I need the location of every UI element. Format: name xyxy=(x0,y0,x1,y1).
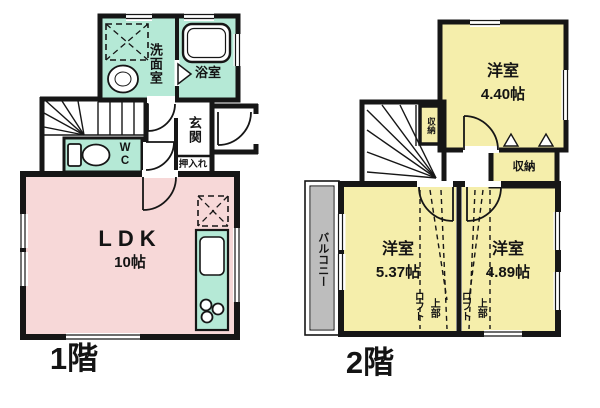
bedroom3-name-label: 洋室 xyxy=(464,240,552,260)
bedroom1-name-label: 洋室 xyxy=(461,62,545,82)
refrigerator-space xyxy=(198,196,228,226)
floor2-label: 2階 xyxy=(326,342,414,384)
washbasin xyxy=(108,66,138,93)
bedroom2-size-label: 5.37帖 xyxy=(344,264,452,282)
floorplan-canvas: 洗面室 浴室 玄関 WC 押入れ LDK 10帖 1階 洋室 4.40帖 収納 … xyxy=(0,0,600,408)
washing-machine xyxy=(106,24,148,60)
wc-label: WC xyxy=(117,139,133,171)
entrance-label: 玄関 xyxy=(185,106,203,154)
bedroom2-loft-label: ロフト xyxy=(410,280,424,332)
ldk-name-label: LDK xyxy=(68,226,192,252)
floor1-label: 1階 xyxy=(32,338,116,380)
bedroom1-size-label: 4.40帖 xyxy=(457,86,549,104)
stairs-floor1 xyxy=(44,101,144,135)
closet-label: 押入れ xyxy=(172,158,214,171)
bedroom3-loft-label: ロフト xyxy=(457,280,471,332)
bedroom3-loft-label2: 上部 xyxy=(473,292,487,324)
bathroom-label: 浴室 xyxy=(184,64,232,82)
stair-storage-label: 収納 xyxy=(420,107,442,143)
sliding-door-mark xyxy=(539,134,553,146)
sliding-door-mark xyxy=(504,134,518,146)
storage-label: 収納 xyxy=(493,159,555,175)
kitchen-counter xyxy=(196,230,228,330)
balcony-label: バルコニー xyxy=(311,206,333,312)
ldk-size-label: 10帖 xyxy=(68,254,192,272)
washroom-label: 洗面室 xyxy=(146,28,164,100)
toilet xyxy=(68,144,110,166)
bathtub xyxy=(183,24,230,62)
bedroom2-loft-label2: 上部 xyxy=(426,292,440,324)
kitchen-sink xyxy=(200,237,224,275)
bedroom2-name-label: 洋室 xyxy=(348,240,448,260)
bedroom3-size-label: 4.89帖 xyxy=(460,264,556,282)
